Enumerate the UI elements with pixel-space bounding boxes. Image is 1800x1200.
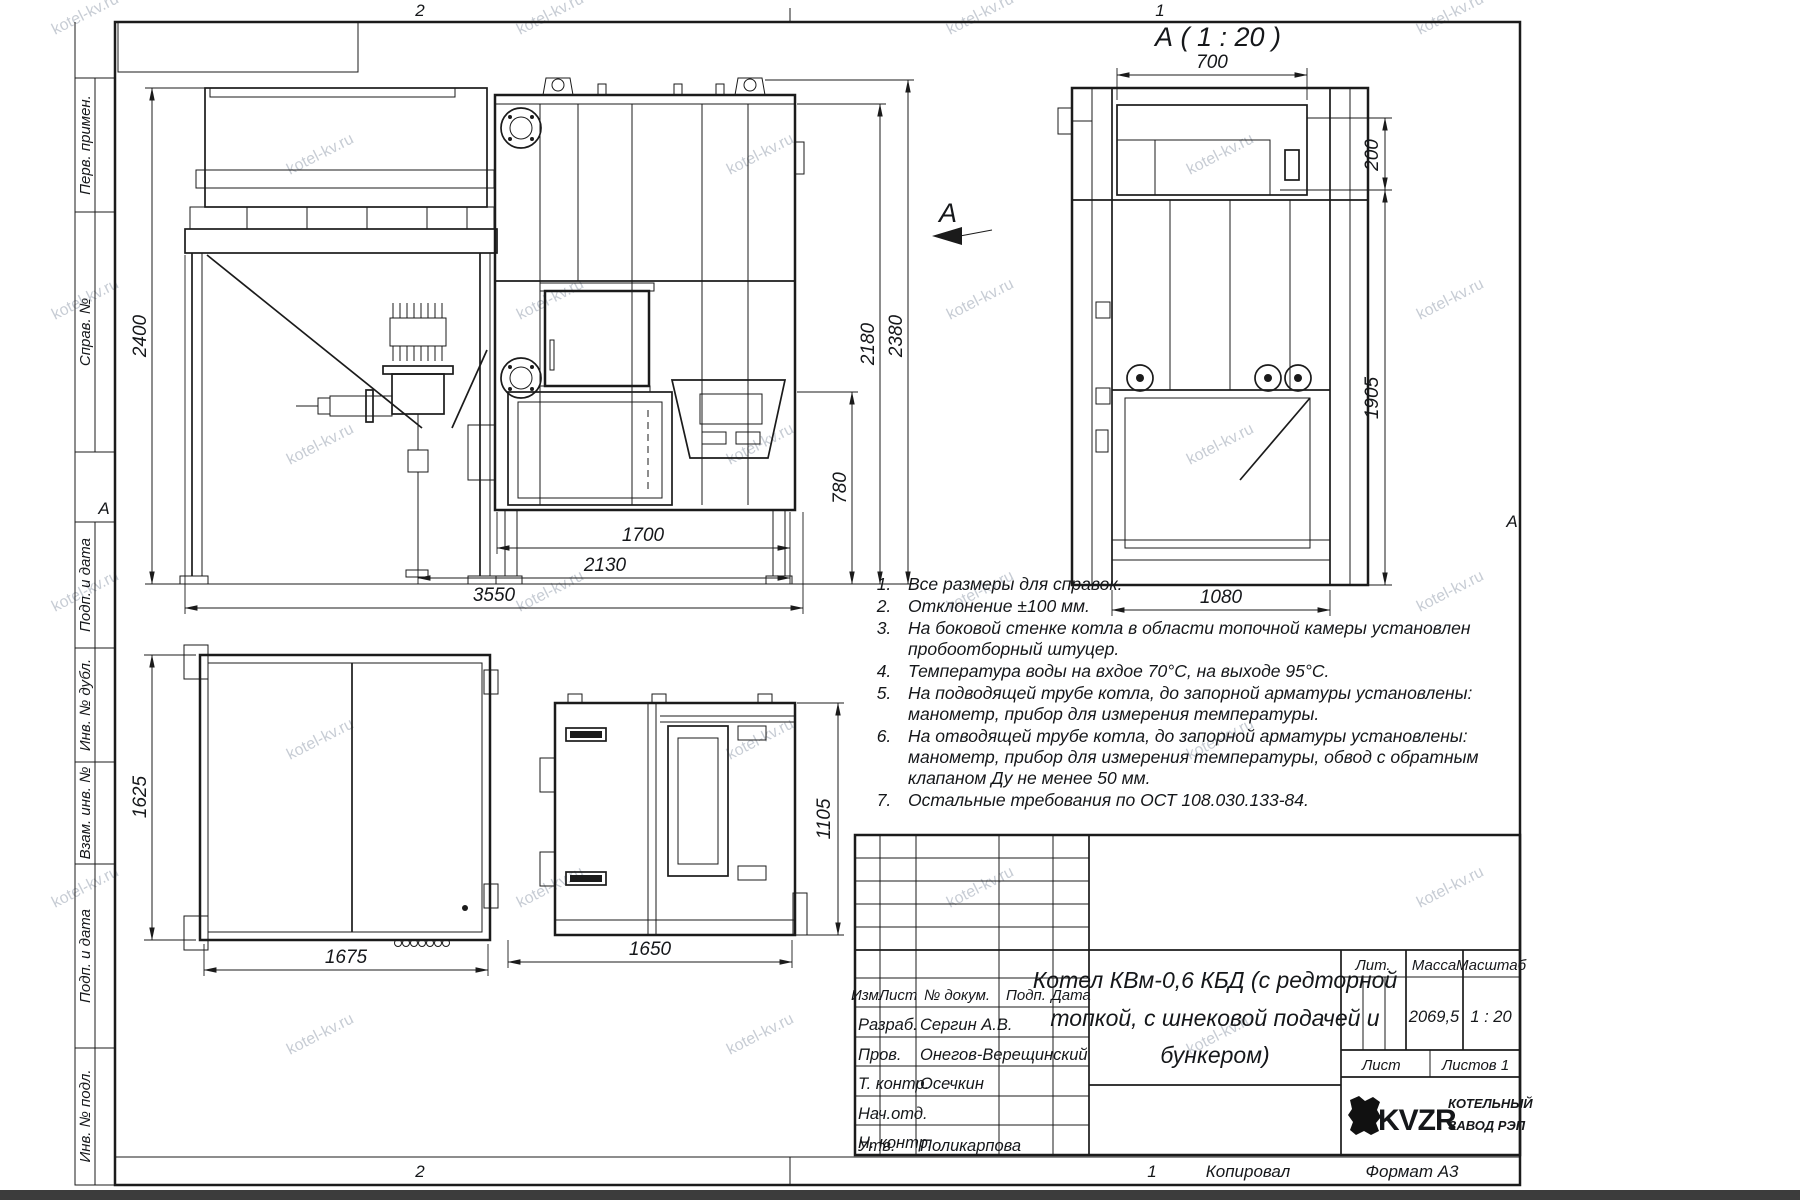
sidebar-label-perv-primen: Перв. примен. bbox=[77, 95, 94, 195]
row-name: Поликарпова bbox=[920, 1137, 1021, 1155]
note-line: Все размеры для справок. bbox=[908, 574, 1122, 594]
dim-side-1105: 1105 bbox=[814, 798, 835, 839]
watermark-text: kotel-kv.ru bbox=[724, 420, 796, 468]
watermark-text: kotel-kv.ru bbox=[1414, 275, 1486, 323]
watermark-text: kotel-kv.ru bbox=[514, 0, 586, 39]
note-num: 3. bbox=[877, 618, 892, 638]
note-line: На боковой стенке котла в области топочн… bbox=[908, 618, 1471, 638]
row-role: Т. контр. bbox=[858, 1075, 929, 1093]
watermark-text: kotel-kv.ru bbox=[284, 715, 356, 763]
slot-upper bbox=[566, 728, 606, 741]
frame-sidebar: Перв. примен. Справ. № Подп. и дата Инв.… bbox=[75, 78, 115, 1185]
dim-section-1080: 1080 bbox=[1200, 587, 1243, 608]
view-arrow-label: А bbox=[937, 198, 957, 228]
format-label: Формат А3 bbox=[1365, 1162, 1459, 1181]
note-num: 1. bbox=[877, 574, 892, 594]
ash-door bbox=[508, 392, 672, 505]
sheets-label: Листов bbox=[1441, 1057, 1497, 1074]
scan-edge bbox=[0, 1190, 1800, 1200]
watermark-text: kotel-kv.ru bbox=[1184, 130, 1256, 178]
note-num: 2. bbox=[876, 596, 892, 616]
dim-front-2180: 2180 bbox=[858, 322, 879, 366]
row-name: Осечкин bbox=[920, 1075, 984, 1093]
dim-front-2130: 2130 bbox=[583, 555, 627, 576]
note-line: Остальные требования по ОСТ 108.030.133-… bbox=[908, 790, 1309, 810]
mass-label: Масса bbox=[1412, 957, 1456, 974]
plan-view: 1625 1675 bbox=[130, 645, 498, 976]
watermark-text: kotel-kv.ru bbox=[944, 275, 1016, 323]
drawing-sheet: kotel-kv.rukotel-kv.rukotel-kv.rukotel-k… bbox=[0, 0, 1800, 1200]
note-num: 5. bbox=[877, 683, 892, 703]
sidebar-label-inv-podl: Инв. № подл. bbox=[77, 1069, 94, 1162]
title-block: Изм. Лист № докум. Подп. Дата Разраб. Се… bbox=[851, 835, 1533, 1155]
zone-top-2: 2 bbox=[414, 1, 425, 20]
front-view: А 2400 780 2180 2380 1700 bbox=[130, 78, 992, 614]
dim-section-200: 200 bbox=[1362, 139, 1383, 172]
view-arrow-a: А bbox=[932, 198, 992, 245]
zone-top-1: 1 bbox=[1155, 1, 1164, 20]
row-role: Утв. bbox=[857, 1137, 896, 1155]
watermark-text: kotel-kv.ru bbox=[944, 0, 1016, 39]
watermark-text: kotel-kv.ru bbox=[49, 863, 121, 911]
col-list: Лист bbox=[878, 987, 918, 1004]
sidebar-label-vzam-inv: Взам. инв. № bbox=[77, 767, 94, 860]
watermark-text: kotel-kv.ru bbox=[724, 1010, 796, 1058]
fold-mark-right: А bbox=[1505, 512, 1517, 531]
dim-front-3550: 3550 bbox=[473, 585, 516, 606]
note-line: На подводящей трубе котла, до запорной а… bbox=[908, 683, 1472, 703]
scale-value: 1 : 20 bbox=[1470, 1008, 1512, 1026]
fold-mark-left: А bbox=[97, 499, 109, 518]
stamp-box bbox=[118, 22, 358, 72]
dim-side-1650: 1650 bbox=[629, 939, 672, 960]
side-door bbox=[668, 726, 728, 876]
note-num: 6. bbox=[877, 726, 892, 746]
section-view-a: А ( 1 : 20 ) bbox=[1058, 22, 1392, 616]
lit-label: Лит. bbox=[1354, 957, 1390, 974]
dim-plan-1675: 1675 bbox=[325, 947, 368, 968]
doc-title-line: топкой, с шнековой подачей и bbox=[1050, 1005, 1379, 1031]
note-line: клапаном Ду не менее 50 мм. bbox=[908, 768, 1150, 788]
logo-text: KVZR bbox=[1378, 1104, 1457, 1137]
scale-label: Масштаб bbox=[1456, 957, 1527, 974]
row-name: Сергин А.В. bbox=[920, 1016, 1012, 1034]
watermark-text: kotel-kv.ru bbox=[284, 1010, 356, 1058]
watermark-layer: kotel-kv.rukotel-kv.rukotel-kv.rukotel-k… bbox=[49, 0, 1486, 1059]
watermark-text: kotel-kv.ru bbox=[49, 0, 121, 39]
mass-value: 2069,5 bbox=[1408, 1008, 1460, 1026]
note-line: манометр, прибор для измерения температу… bbox=[908, 704, 1319, 724]
doc-title-line: Котел КВм-0,6 КБД (с редторной bbox=[1033, 967, 1398, 993]
side-view: 1105 1650 bbox=[508, 694, 844, 968]
zone-bottom-1: 1 bbox=[1147, 1162, 1156, 1181]
sidebar-label-inv-dubl: Инв. № дубл. bbox=[77, 659, 94, 751]
dim-front-780: 780 bbox=[830, 472, 851, 504]
dim-section-700: 700 bbox=[1196, 52, 1228, 73]
watermark-text: kotel-kv.ru bbox=[1414, 567, 1486, 615]
row-name: Онегов-Верещинский bbox=[920, 1046, 1088, 1064]
feeder-motor bbox=[390, 303, 446, 361]
col-doc: № докум. bbox=[924, 987, 990, 1004]
sidebar-label-sprav-no: Справ. № bbox=[77, 298, 94, 366]
note-num: 4. bbox=[877, 661, 892, 681]
copied-label: Копировал bbox=[1206, 1162, 1291, 1181]
front-dimensions: 2400 780 2180 2380 1700 2130 3550 bbox=[130, 80, 914, 614]
note-line: Отклонение ±100 мм. bbox=[908, 596, 1090, 616]
row-role: Разраб. bbox=[858, 1016, 918, 1034]
watermark-text: kotel-kv.ru bbox=[1184, 420, 1256, 468]
note-line: На отводящей трубе котла, до запорной ар… bbox=[908, 726, 1468, 746]
dim-section-1905: 1905 bbox=[1362, 376, 1383, 419]
doc-title-line: бункером) bbox=[1160, 1042, 1269, 1068]
note-num: 7. bbox=[877, 790, 892, 810]
section-view-title: А ( 1 : 20 ) bbox=[1153, 22, 1281, 52]
sheets-value: 1 bbox=[1501, 1057, 1509, 1074]
watermark-text: kotel-kv.ru bbox=[514, 863, 586, 911]
zone-bottom-2: 2 bbox=[414, 1162, 425, 1181]
furnace-door bbox=[545, 291, 649, 386]
kvzr-logo: KVZR КОТЕЛЬНЫЙ ЗАВОД РЭП bbox=[1348, 1095, 1533, 1137]
note-line: Температура воды на вхдое 70°С, на выход… bbox=[908, 661, 1329, 681]
sidebar-label-podp-data-1: Подп. и дата bbox=[77, 538, 94, 632]
watermark-text: kotel-kv.ru bbox=[724, 130, 796, 178]
notes: 1. Все размеры для справок. 2. Отклонени… bbox=[876, 574, 1479, 810]
company-line: КОТЕЛЬНЫЙ bbox=[1448, 1095, 1533, 1111]
note-line: пробоотборный штуцер. bbox=[908, 639, 1119, 659]
dim-plan-1625: 1625 bbox=[130, 775, 151, 818]
note-line: манометр, прибор для измерения температу… bbox=[908, 747, 1478, 767]
watermark-text: kotel-kv.ru bbox=[1414, 863, 1486, 911]
dim-front-2400: 2400 bbox=[130, 314, 151, 358]
watermark-text: kotel-kv.ru bbox=[284, 130, 356, 178]
dim-front-1700: 1700 bbox=[622, 525, 665, 546]
sidebar-label-podp-data-2: Подп. и дата bbox=[77, 909, 94, 1003]
row-role: Нач.отд. bbox=[858, 1105, 928, 1123]
dim-front-2380: 2380 bbox=[886, 314, 907, 358]
side-dimensions: 1105 1650 bbox=[508, 703, 844, 968]
flange-port-upper bbox=[501, 108, 541, 148]
watermark-text: kotel-kv.ru bbox=[1414, 0, 1486, 39]
row-role: Пров. bbox=[858, 1046, 902, 1064]
watermark-text: kotel-kv.ru bbox=[284, 420, 356, 468]
sheet-label: Лист bbox=[1361, 1057, 1401, 1074]
company-line: ЗАВОД РЭП bbox=[1448, 1118, 1526, 1133]
